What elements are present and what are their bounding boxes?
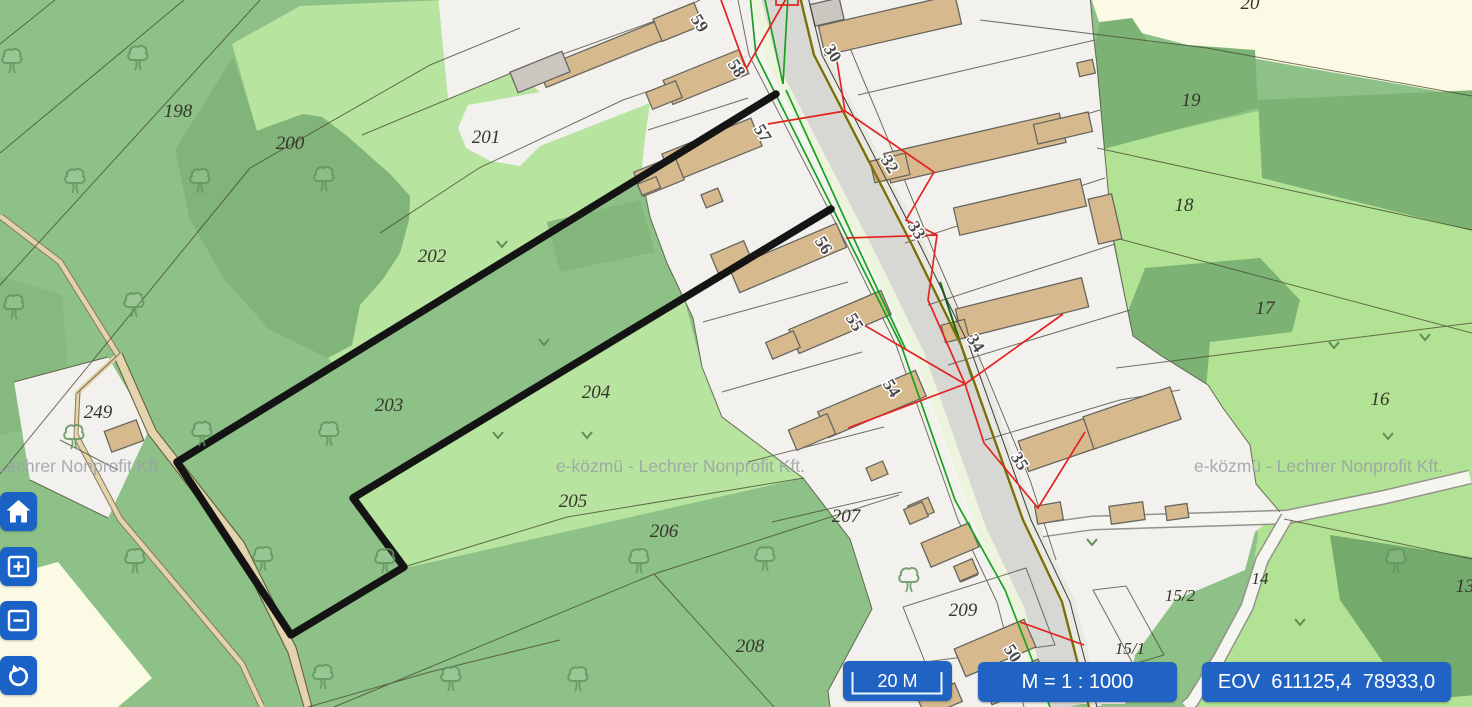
svg-text:200: 200 xyxy=(276,133,305,154)
svg-text:16: 16 xyxy=(1371,389,1391,410)
svg-text:201: 201 xyxy=(472,127,501,148)
svg-text:20: 20 xyxy=(1241,0,1261,14)
svg-text:15/2: 15/2 xyxy=(1165,586,1196,605)
svg-text:17: 17 xyxy=(1256,298,1277,319)
svg-text:205: 205 xyxy=(559,491,588,512)
svg-text:203: 203 xyxy=(375,395,404,416)
svg-text:19: 19 xyxy=(1182,90,1202,111)
svg-text:204: 204 xyxy=(582,382,611,403)
svg-text:18: 18 xyxy=(1175,195,1195,216)
svg-text:e-közmü - Lechrer Nonprofit Kf: e-közmü - Lechrer Nonprofit Kft. xyxy=(0,456,163,476)
svg-text:13: 13 xyxy=(1456,576,1472,597)
svg-text:209: 209 xyxy=(949,600,978,621)
svg-text:206: 206 xyxy=(650,521,679,542)
svg-text:208: 208 xyxy=(736,636,765,657)
svg-text:249: 249 xyxy=(84,402,113,423)
svg-text:15/1: 15/1 xyxy=(1115,639,1145,658)
svg-text:14: 14 xyxy=(1252,569,1270,588)
svg-text:e-közmü - Lechrer Nonprofit Kf: e-közmü - Lechrer Nonprofit Kft. xyxy=(1194,456,1443,476)
svg-text:e-közmü - Lechrer Nonprofit Kf: e-közmü - Lechrer Nonprofit Kft. xyxy=(556,456,805,476)
svg-text:198: 198 xyxy=(164,101,193,122)
svg-text:202: 202 xyxy=(418,246,447,267)
svg-text:207: 207 xyxy=(832,506,862,527)
